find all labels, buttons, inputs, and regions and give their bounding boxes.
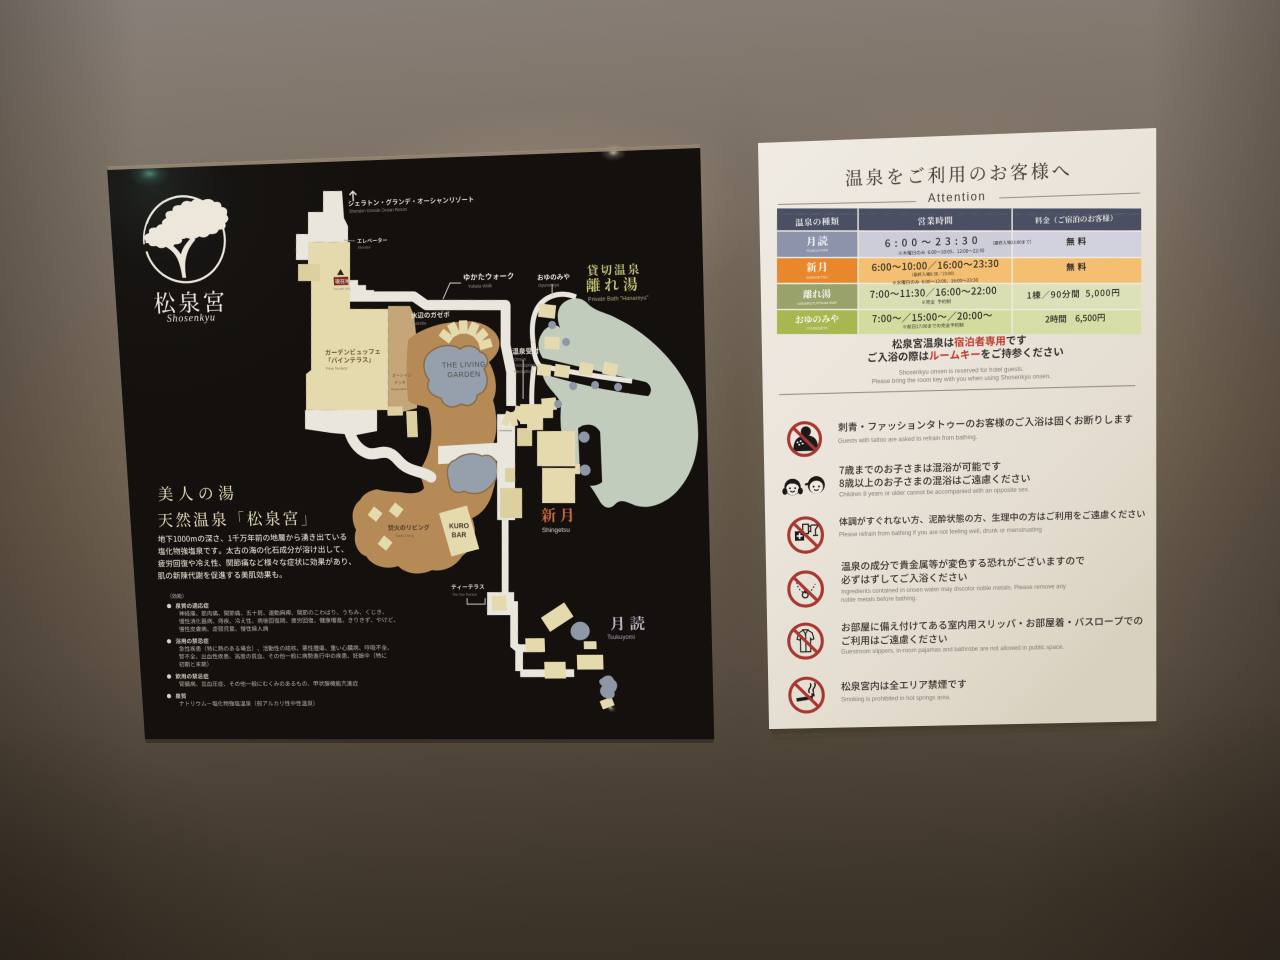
svg-text:SHINGETSU: SHINGETSU: [806, 275, 828, 280]
svg-text:OYUNOMIYA: OYUNOMIYA: [806, 326, 828, 331]
svg-text:Attention: Attention: [928, 191, 987, 205]
svg-text:TSUKUYOMI: TSUKUYOMI: [806, 249, 828, 254]
